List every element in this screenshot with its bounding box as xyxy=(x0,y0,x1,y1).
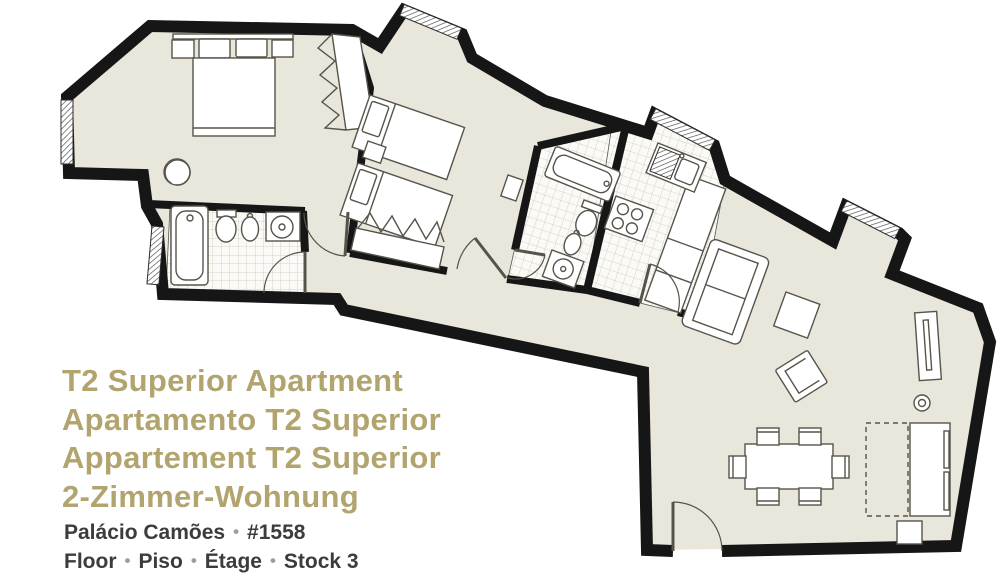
apartment-details: Palácio Camões•#1558 Floor•Piso•Étage•St… xyxy=(64,518,359,576)
floorplan-page: T2 Superior Apartment Apartamento T2 Sup… xyxy=(0,0,1000,579)
window-icon xyxy=(61,100,73,164)
title-line-fr: Appartement T2 Superior xyxy=(62,439,441,478)
chair xyxy=(729,456,746,478)
sideboard-door xyxy=(944,472,949,510)
dining-table xyxy=(745,444,833,489)
floor-lamp xyxy=(914,395,930,411)
chair xyxy=(799,488,821,505)
bidet xyxy=(242,217,259,241)
stool xyxy=(897,521,922,544)
chair xyxy=(832,456,849,478)
building-name: Palácio Camões xyxy=(64,521,225,544)
apartment-number: #1558 xyxy=(247,521,305,544)
chair xyxy=(799,428,821,445)
building-line: Palácio Camões•#1558 xyxy=(64,518,359,547)
floor-line: Floor•Piso•Étage•Stock 3 xyxy=(64,547,359,576)
title-line-de: 2-Zimmer-Wohnung xyxy=(62,478,441,517)
apartment-title: T2 Superior Apartment Apartamento T2 Sup… xyxy=(62,362,441,516)
floor-label-en: Floor xyxy=(64,550,117,573)
floor-label-fr: Étage xyxy=(205,550,262,573)
title-line-pt: Apartamento T2 Superior xyxy=(62,401,441,440)
double-bed xyxy=(193,58,275,136)
toilet xyxy=(216,216,236,242)
floor-number: Stock 3 xyxy=(284,550,359,573)
separator-dot: • xyxy=(225,522,247,541)
floor-label-pt: Piso xyxy=(138,550,182,573)
separator-dot: • xyxy=(262,551,284,570)
chair xyxy=(757,488,779,505)
separator-dot: • xyxy=(117,551,139,570)
nightstand xyxy=(272,40,293,57)
pillow xyxy=(236,39,267,57)
title-line-en: T2 Superior Apartment xyxy=(62,362,441,401)
nightstand xyxy=(172,40,194,58)
sideboard-door xyxy=(944,431,949,468)
headboard xyxy=(173,34,293,39)
pillow xyxy=(199,39,230,58)
separator-dot: • xyxy=(183,551,205,570)
washbasin xyxy=(271,216,293,238)
chair xyxy=(757,428,779,445)
